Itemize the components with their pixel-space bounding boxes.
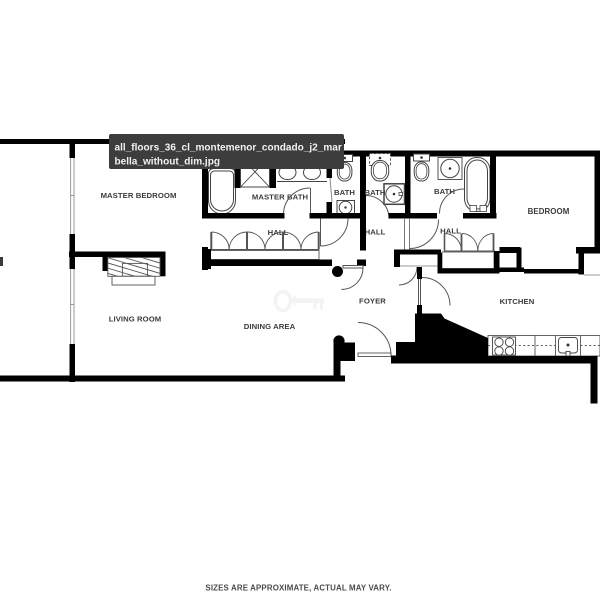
svg-text:MASTER BATH: MASTER BATH xyxy=(252,193,309,202)
svg-text:DINING AREA: DINING AREA xyxy=(244,322,296,331)
svg-text:BATH: BATH xyxy=(334,188,355,197)
svg-text:all_floors_36_cl_montemenor_co: all_floors_36_cl_montemenor_condado_j2_m… xyxy=(115,143,342,154)
svg-text:SIZES ARE APPROXIMATE, ACTUAL: SIZES ARE APPROXIMATE, ACTUAL MAY VARY. xyxy=(205,583,391,592)
svg-text:FOYER: FOYER xyxy=(359,296,386,305)
svg-text:bella_without_dim.jpg: bella_without_dim.jpg xyxy=(115,157,221,168)
svg-text:MASTER BEDROOM: MASTER BEDROOM xyxy=(101,191,177,200)
svg-text:KITCHEN: KITCHEN xyxy=(500,297,535,306)
svg-text:BEDROOM: BEDROOM xyxy=(528,207,570,216)
svg-text:LIVING ROOM: LIVING ROOM xyxy=(109,314,162,323)
svg-text:HALL: HALL xyxy=(365,228,386,237)
